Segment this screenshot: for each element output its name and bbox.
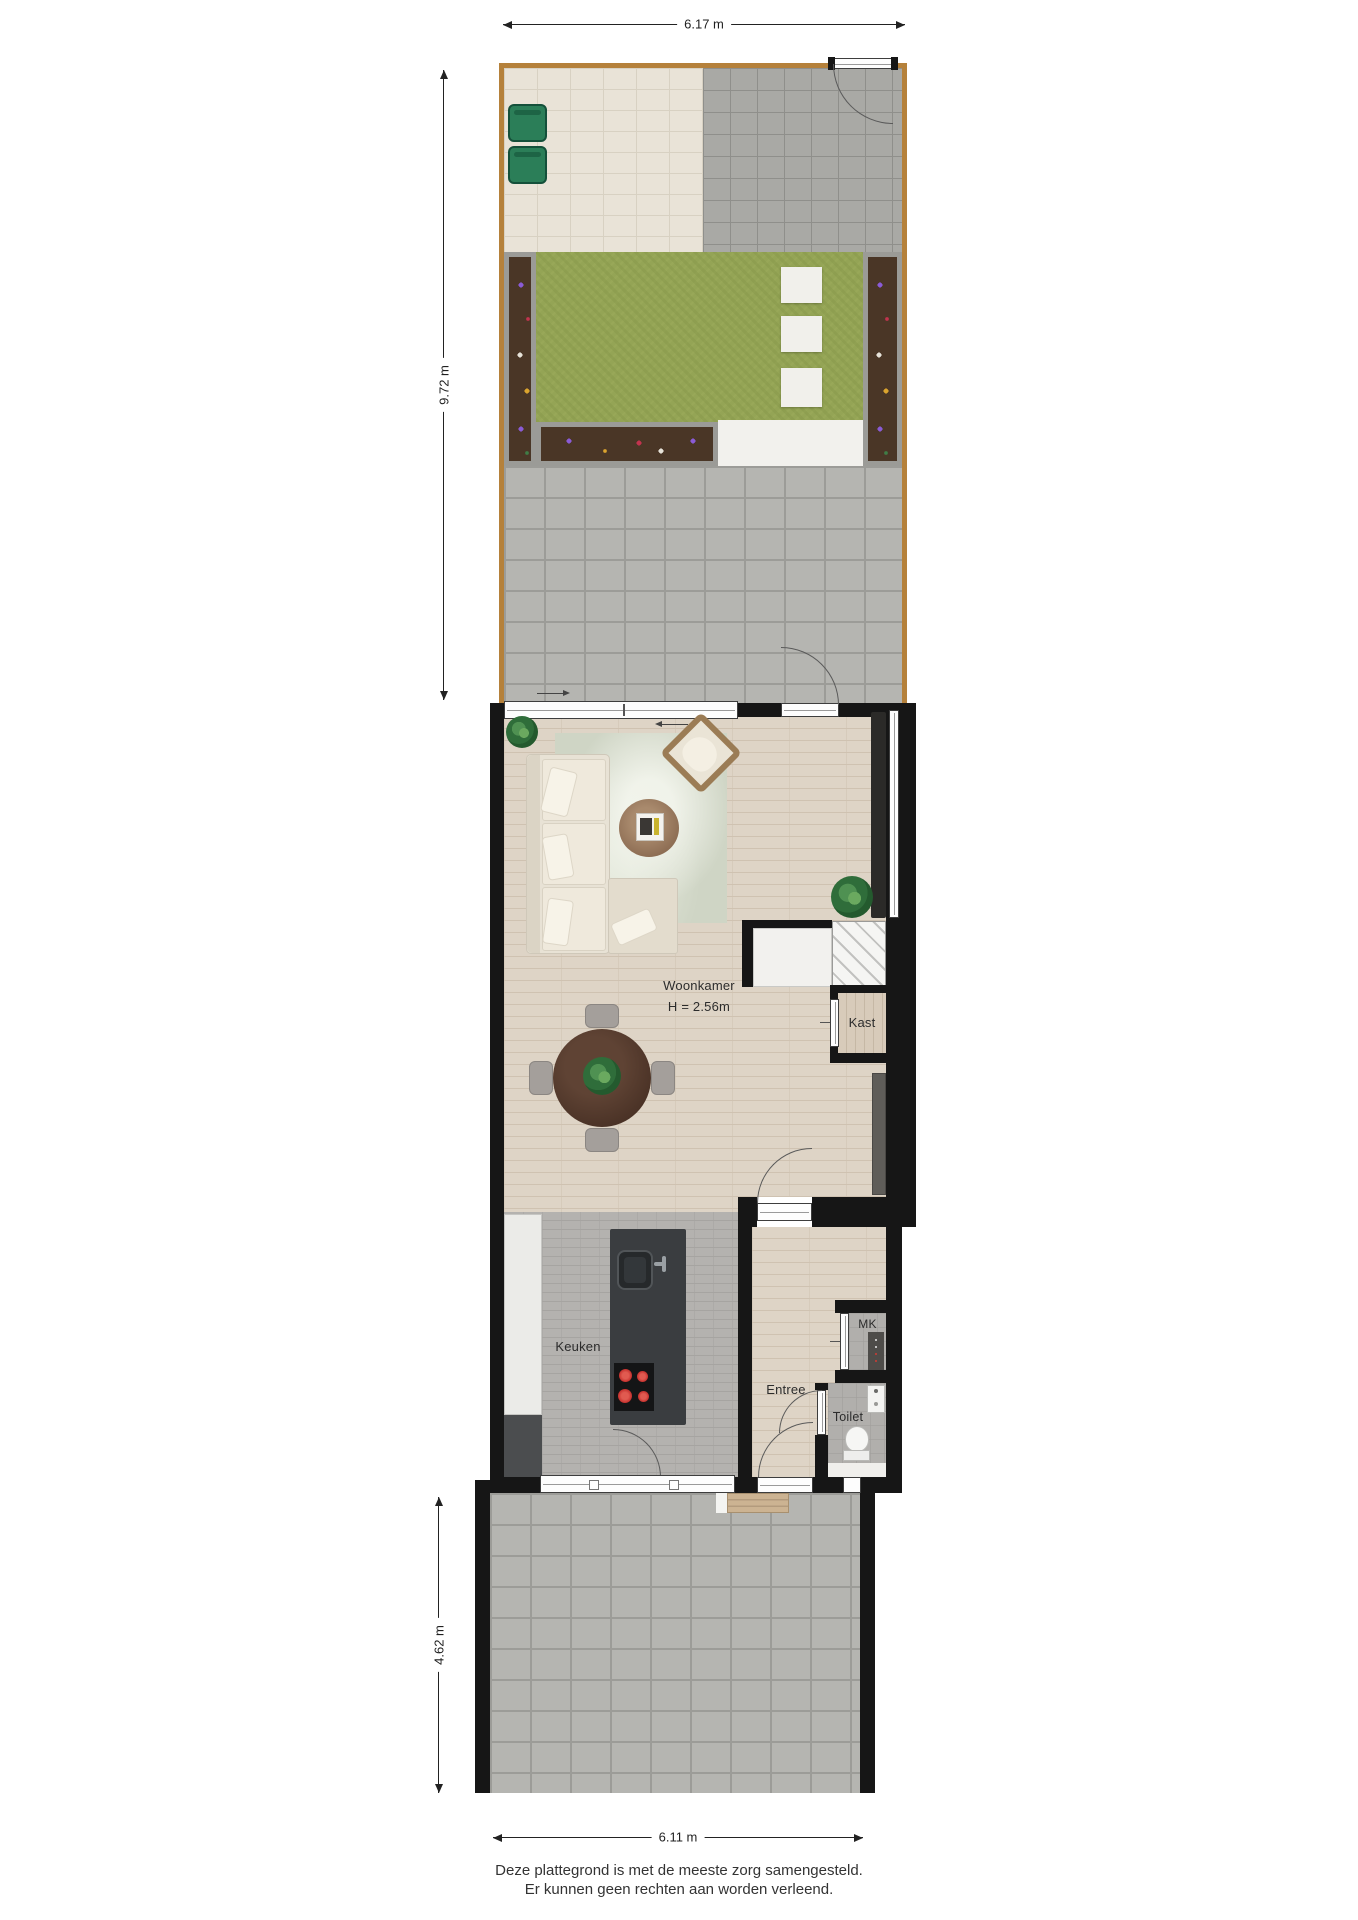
flower-bed-bottom xyxy=(536,422,718,466)
dimension-value: 9.72 m xyxy=(437,358,452,412)
window-vent-mark xyxy=(589,1480,599,1490)
disclaimer-line-1: Deze plattegrond is met de meeste zorg s… xyxy=(0,1862,1358,1879)
window-frame-line xyxy=(894,713,895,915)
arrow-down-icon xyxy=(440,691,448,700)
niche-wall-top xyxy=(742,920,832,928)
faucet-icon xyxy=(662,1256,666,1272)
toilet-cistern xyxy=(843,1450,870,1461)
toilet-wall-stub xyxy=(815,1435,828,1477)
sofa-armrest xyxy=(527,755,540,953)
sofa-chaise xyxy=(608,878,678,954)
faucet-icon xyxy=(874,1389,878,1393)
garden-patio-white xyxy=(718,420,863,466)
dining-chair xyxy=(585,1128,619,1152)
front-door xyxy=(757,1477,813,1493)
burner-icon xyxy=(638,1391,649,1402)
front-wall-segment xyxy=(861,1477,902,1493)
arrow-right-icon xyxy=(896,21,905,29)
curtain xyxy=(871,712,886,918)
wall-top-segment xyxy=(738,703,781,717)
stepping-stone xyxy=(781,316,822,352)
front-entry-pad xyxy=(716,1493,727,1513)
meter-panel xyxy=(868,1332,884,1370)
kitchen-counter xyxy=(504,1214,542,1415)
table-tray xyxy=(636,813,664,841)
waste-bin xyxy=(508,104,547,142)
front-wall-stub-left xyxy=(475,1480,490,1793)
garden-block-paving xyxy=(504,466,902,703)
room-label-closet: Kast xyxy=(834,1015,890,1030)
drain-icon xyxy=(874,1402,878,1406)
door-frame-line xyxy=(760,1485,810,1486)
meter-closet-wall-bottom xyxy=(835,1370,886,1383)
burner-icon xyxy=(618,1389,632,1403)
front-wall-stub-right xyxy=(860,1493,875,1793)
dining-chair xyxy=(529,1061,553,1095)
arrow-right-icon xyxy=(563,690,570,696)
arrow-right-icon xyxy=(854,1834,863,1842)
closet-wall-bottom xyxy=(830,1053,886,1063)
closet-door-handle xyxy=(820,1022,830,1023)
dining-table xyxy=(553,1029,651,1127)
window-vent-mark xyxy=(669,1480,679,1490)
kitchen-front-window xyxy=(540,1475,735,1493)
front-steps xyxy=(727,1493,789,1513)
dimension-garden-width: 6.17 m xyxy=(503,18,905,32)
meter-closet-door xyxy=(840,1313,849,1370)
dining-chair xyxy=(585,1004,619,1028)
toilet-sink xyxy=(867,1385,885,1413)
dining-chair xyxy=(651,1061,675,1095)
dimension-value: 4.62 m xyxy=(432,1618,447,1672)
sofa-pillow xyxy=(610,907,658,946)
tray-book xyxy=(654,818,659,835)
side-window xyxy=(889,710,899,918)
plant-pot xyxy=(506,716,538,748)
kitchen-appliance xyxy=(504,1415,542,1477)
armchair-cushion xyxy=(677,730,724,777)
door-frame-line xyxy=(760,1212,809,1213)
kitchen-island xyxy=(610,1229,686,1425)
slide-direction-arrow xyxy=(537,693,563,694)
arrow-left-icon xyxy=(493,1834,502,1842)
front-garden-paving xyxy=(490,1493,860,1793)
kitchen-hall-wall xyxy=(738,1227,752,1477)
arrow-down-icon xyxy=(435,1784,443,1793)
closet-wall-top xyxy=(830,985,886,993)
burner-icon xyxy=(637,1371,648,1382)
flower-bed-right xyxy=(863,252,902,466)
room-label-toilet: Toilet xyxy=(820,1410,876,1424)
meter-closet-door-handle xyxy=(830,1341,840,1342)
room-label-kitchen: Keuken xyxy=(533,1339,623,1354)
tray-photo xyxy=(640,818,652,835)
door-frame-line xyxy=(784,710,836,711)
stepping-stone xyxy=(781,368,822,407)
plant-pot xyxy=(831,876,873,918)
toilet-wall-stub xyxy=(815,1383,828,1390)
room-label-living: Woonkamer xyxy=(629,978,769,993)
wall-right-lower xyxy=(886,1227,902,1493)
sofa xyxy=(526,754,610,954)
living-room-floor-ext xyxy=(504,1197,738,1212)
waste-bin xyxy=(508,146,547,184)
dimension-value: 6.11 m xyxy=(652,1830,705,1845)
stepping-stone xyxy=(781,267,822,303)
front-wall-segment xyxy=(490,1477,540,1493)
floor-plan: 6.17 m 9.72 m 4.62 m 6.11 m xyxy=(0,0,1358,1920)
dimension-front-depth: 4.62 m xyxy=(432,1497,446,1793)
back-door xyxy=(781,703,839,717)
window-frame-line xyxy=(543,1484,732,1485)
staircase xyxy=(832,921,886,991)
door-frame-line xyxy=(845,1316,846,1367)
meter-closet-wall-top xyxy=(835,1300,886,1313)
dimension-front-width: 6.11 m xyxy=(493,1831,863,1845)
living-hall-wall xyxy=(812,1197,916,1227)
niche-wall-side xyxy=(742,920,753,987)
fence-left xyxy=(499,63,504,703)
sliding-door-track xyxy=(507,710,735,711)
arrow-left-icon xyxy=(655,721,662,727)
front-wall-segment xyxy=(813,1477,843,1493)
sideboard xyxy=(872,1073,886,1195)
arrow-up-icon xyxy=(435,1497,443,1506)
wall-left xyxy=(490,703,504,1493)
slide-direction-arrow xyxy=(662,724,688,725)
burner-icon xyxy=(619,1369,632,1382)
toilet-shelf xyxy=(828,1463,886,1477)
front-wall-segment xyxy=(735,1477,757,1493)
dimension-garden-depth: 9.72 m xyxy=(437,70,451,700)
sliding-door-divider xyxy=(623,704,625,716)
coffee-table xyxy=(619,799,679,857)
cooktop xyxy=(614,1363,654,1411)
sink-basin xyxy=(624,1257,646,1283)
toilet-bowl xyxy=(845,1426,869,1452)
toilet-front-window xyxy=(843,1477,861,1493)
disclaimer-line-2: Er kunnen geen rechten aan worden verlee… xyxy=(0,1881,1358,1898)
living-hall-wall xyxy=(738,1197,757,1227)
sink xyxy=(617,1250,653,1290)
arrow-left-icon xyxy=(503,21,512,29)
table-plant xyxy=(583,1057,621,1095)
dimension-value: 6.17 m xyxy=(677,17,731,32)
fence-right xyxy=(902,63,907,703)
room-label-meter-closet: MK xyxy=(849,1317,886,1331)
arrow-up-icon xyxy=(440,70,448,79)
ceiling-height-label: H = 2.56m xyxy=(629,999,769,1014)
flower-bed-left xyxy=(504,252,536,466)
living-hall-door xyxy=(757,1203,812,1221)
